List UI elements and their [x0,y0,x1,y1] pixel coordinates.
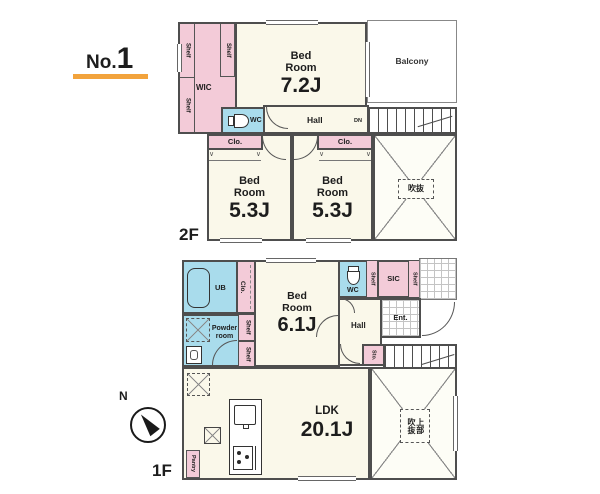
window [220,238,262,243]
shelf-label: Shelf [239,315,255,340]
window [298,476,356,481]
room-pantry: Pantry [186,450,200,478]
listing-number-underline [73,74,148,79]
ldk-size: 20.1J [282,418,372,441]
bathtub-icon [187,268,210,308]
floor-plan-1f: UB Clo. Powder room Shelf Shelf [182,256,457,480]
stairs-down-label: DN [354,118,362,124]
bedroom-2f-main-name2: Room [285,62,316,74]
toilet-bowl-icon [347,271,360,285]
ent-label: Ent. [393,314,407,322]
pantry-label: Pantry [187,451,199,477]
wic-label: WIC [196,84,212,93]
closet-label: Clo. [238,262,247,312]
ub-label: UB [215,284,226,292]
void-2f-labelbox: 吹抜 [398,179,434,199]
sink-basin-icon [190,350,198,360]
room-sic: SIC [377,260,410,298]
window [177,44,182,72]
kitchen-counter [229,399,262,475]
stove-icon [233,446,253,470]
bedroom-1f-name2: Room [282,303,312,315]
stairs-1f-arrow [422,354,455,365]
wic-shelf-inner: Shelf [220,24,235,77]
room-wc-1f: WC [338,260,368,298]
powder-room-label: Powder room [209,325,240,340]
window [266,258,316,263]
floor-label-2f: 2F [179,226,199,245]
cabinet-icon [204,427,221,444]
bedroom-2f-right-size: 5.3J [312,199,353,222]
stairs-2f-arrow [418,116,453,127]
listing-number-prefix: No. [86,52,117,73]
room-ldk: LDK 20.1J Pantry [182,367,370,480]
balcony-door [365,42,370,97]
bedroom-2f-left-name2: Room [234,187,265,199]
entrance-porch [419,258,457,300]
compass-needle-icon [136,411,160,437]
wc-1f-label: WC [347,287,359,295]
window [306,238,351,243]
closet-1f: Clo. [236,260,256,314]
room-wc-2f: WC [221,107,265,134]
room-balcony: Balcony [367,20,457,103]
washer-space-icon [186,318,210,342]
listing-number: No.1 [86,42,133,75]
bedroom-2f-left-size: 5.3J [229,199,270,222]
stairs-2f [367,107,457,134]
balcony-label: Balcony [395,57,428,66]
void-1f-label-line2: 吹抜 [407,418,416,434]
void-1f-labelbox: 上部 吹抜 [400,409,430,443]
wic-shelf-left-top: Shelf [180,24,195,78]
closet-label: Clo. [338,138,352,146]
void-2f-label: 吹抜 [408,185,424,194]
closet-pole [250,265,251,309]
window [453,396,458,451]
bedroom-1f-name1: Bed [287,291,307,303]
ldk-label: LDK [282,405,372,418]
toilet-bowl-icon [234,114,249,128]
hanger-pipe: ∨∨ [209,151,261,161]
hall-2f-label: Hall [307,116,323,125]
bedroom-2f-right-name2: Room [317,187,348,199]
compass-north-label: N [119,390,128,403]
void-1f-label-line1: 上部 [416,418,425,434]
bedroom-2f-main-size: 7.2J [281,74,322,97]
sink-icon [186,346,202,364]
refrigerator-space-icon [187,373,210,396]
closet-label: Clo. [228,138,242,146]
room-entrance: Ent. [380,298,421,338]
door-arc [422,302,455,336]
hall-1f-label: Hall [351,322,366,331]
closet-2f-left: Clo. [207,134,263,150]
powder-line1: Powder [209,325,240,333]
floor-plan-2f: Shelf Shelf Shelf WIC Bed Room 7.2J Balc… [178,20,457,243]
floor-plan-page: No.1 Shelf Shelf Shelf WIC Bed Room 7.2J [0,0,600,494]
wic-shelf-left-bottom: Shelf [180,78,195,132]
ldk-labelblock: LDK 20.1J [282,405,372,441]
wc-2f-label: WC [250,117,262,125]
faucet-icon [243,424,249,429]
sic-label: SIC [387,275,400,283]
bedroom-2f-left-name1: Bed [239,175,260,187]
window [266,20,318,25]
closet-2f-right: Clo. [317,134,373,150]
void-1f-upper: 上部 吹抜 [370,367,457,480]
compass-icon [130,407,166,443]
bedroom-1f-size: 6.1J [278,314,317,336]
counter-edge [255,446,256,470]
room-ub: UB [182,260,238,314]
shelf-label: Shelf [239,342,255,366]
floor-label-1f: 1F [152,462,172,481]
listing-number-value: 1 [117,42,134,75]
room-bedroom-1f: Bed Room 6.1J [254,260,340,367]
void-2f: 吹抜 [373,134,457,241]
room-storage: Sto. [362,344,385,366]
bedroom-2f-right-name1: Bed [322,175,343,187]
bedroom-2f-main-name1: Bed [291,50,312,62]
hanger-pipe: ∨∨ [319,151,371,161]
shelf-label: Shelf [180,24,194,77]
storage-label: Sto. [364,346,383,364]
shelf-label: Shelf [221,24,234,76]
kitchen-sink-icon [234,405,256,425]
shelf-label: Shelf [180,78,194,132]
